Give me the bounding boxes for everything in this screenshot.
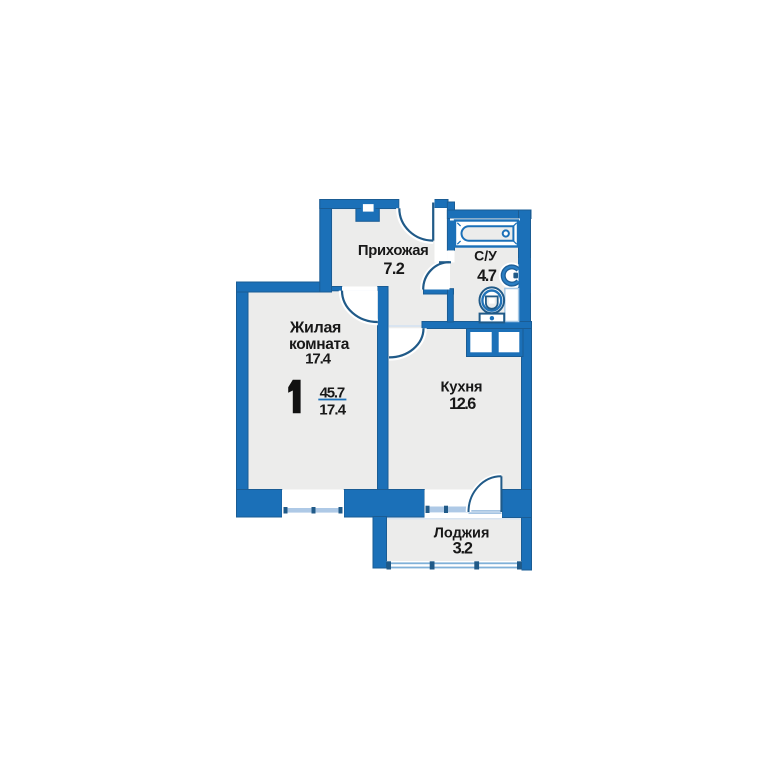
svg-text:Прихожая: Прихожая [358,243,429,259]
svg-text:3.2: 3.2 [453,539,473,557]
svg-text:Кухня: Кухня [441,380,483,396]
svg-text:4.7: 4.7 [477,267,497,285]
svg-text:17.4: 17.4 [305,351,332,368]
svg-text:17.4: 17.4 [319,401,346,418]
svg-text:Жилая: Жилая [289,319,341,336]
svg-text:С/У: С/У [474,247,497,263]
svg-text:12.6: 12.6 [449,395,476,413]
svg-text:7.2: 7.2 [383,260,404,278]
